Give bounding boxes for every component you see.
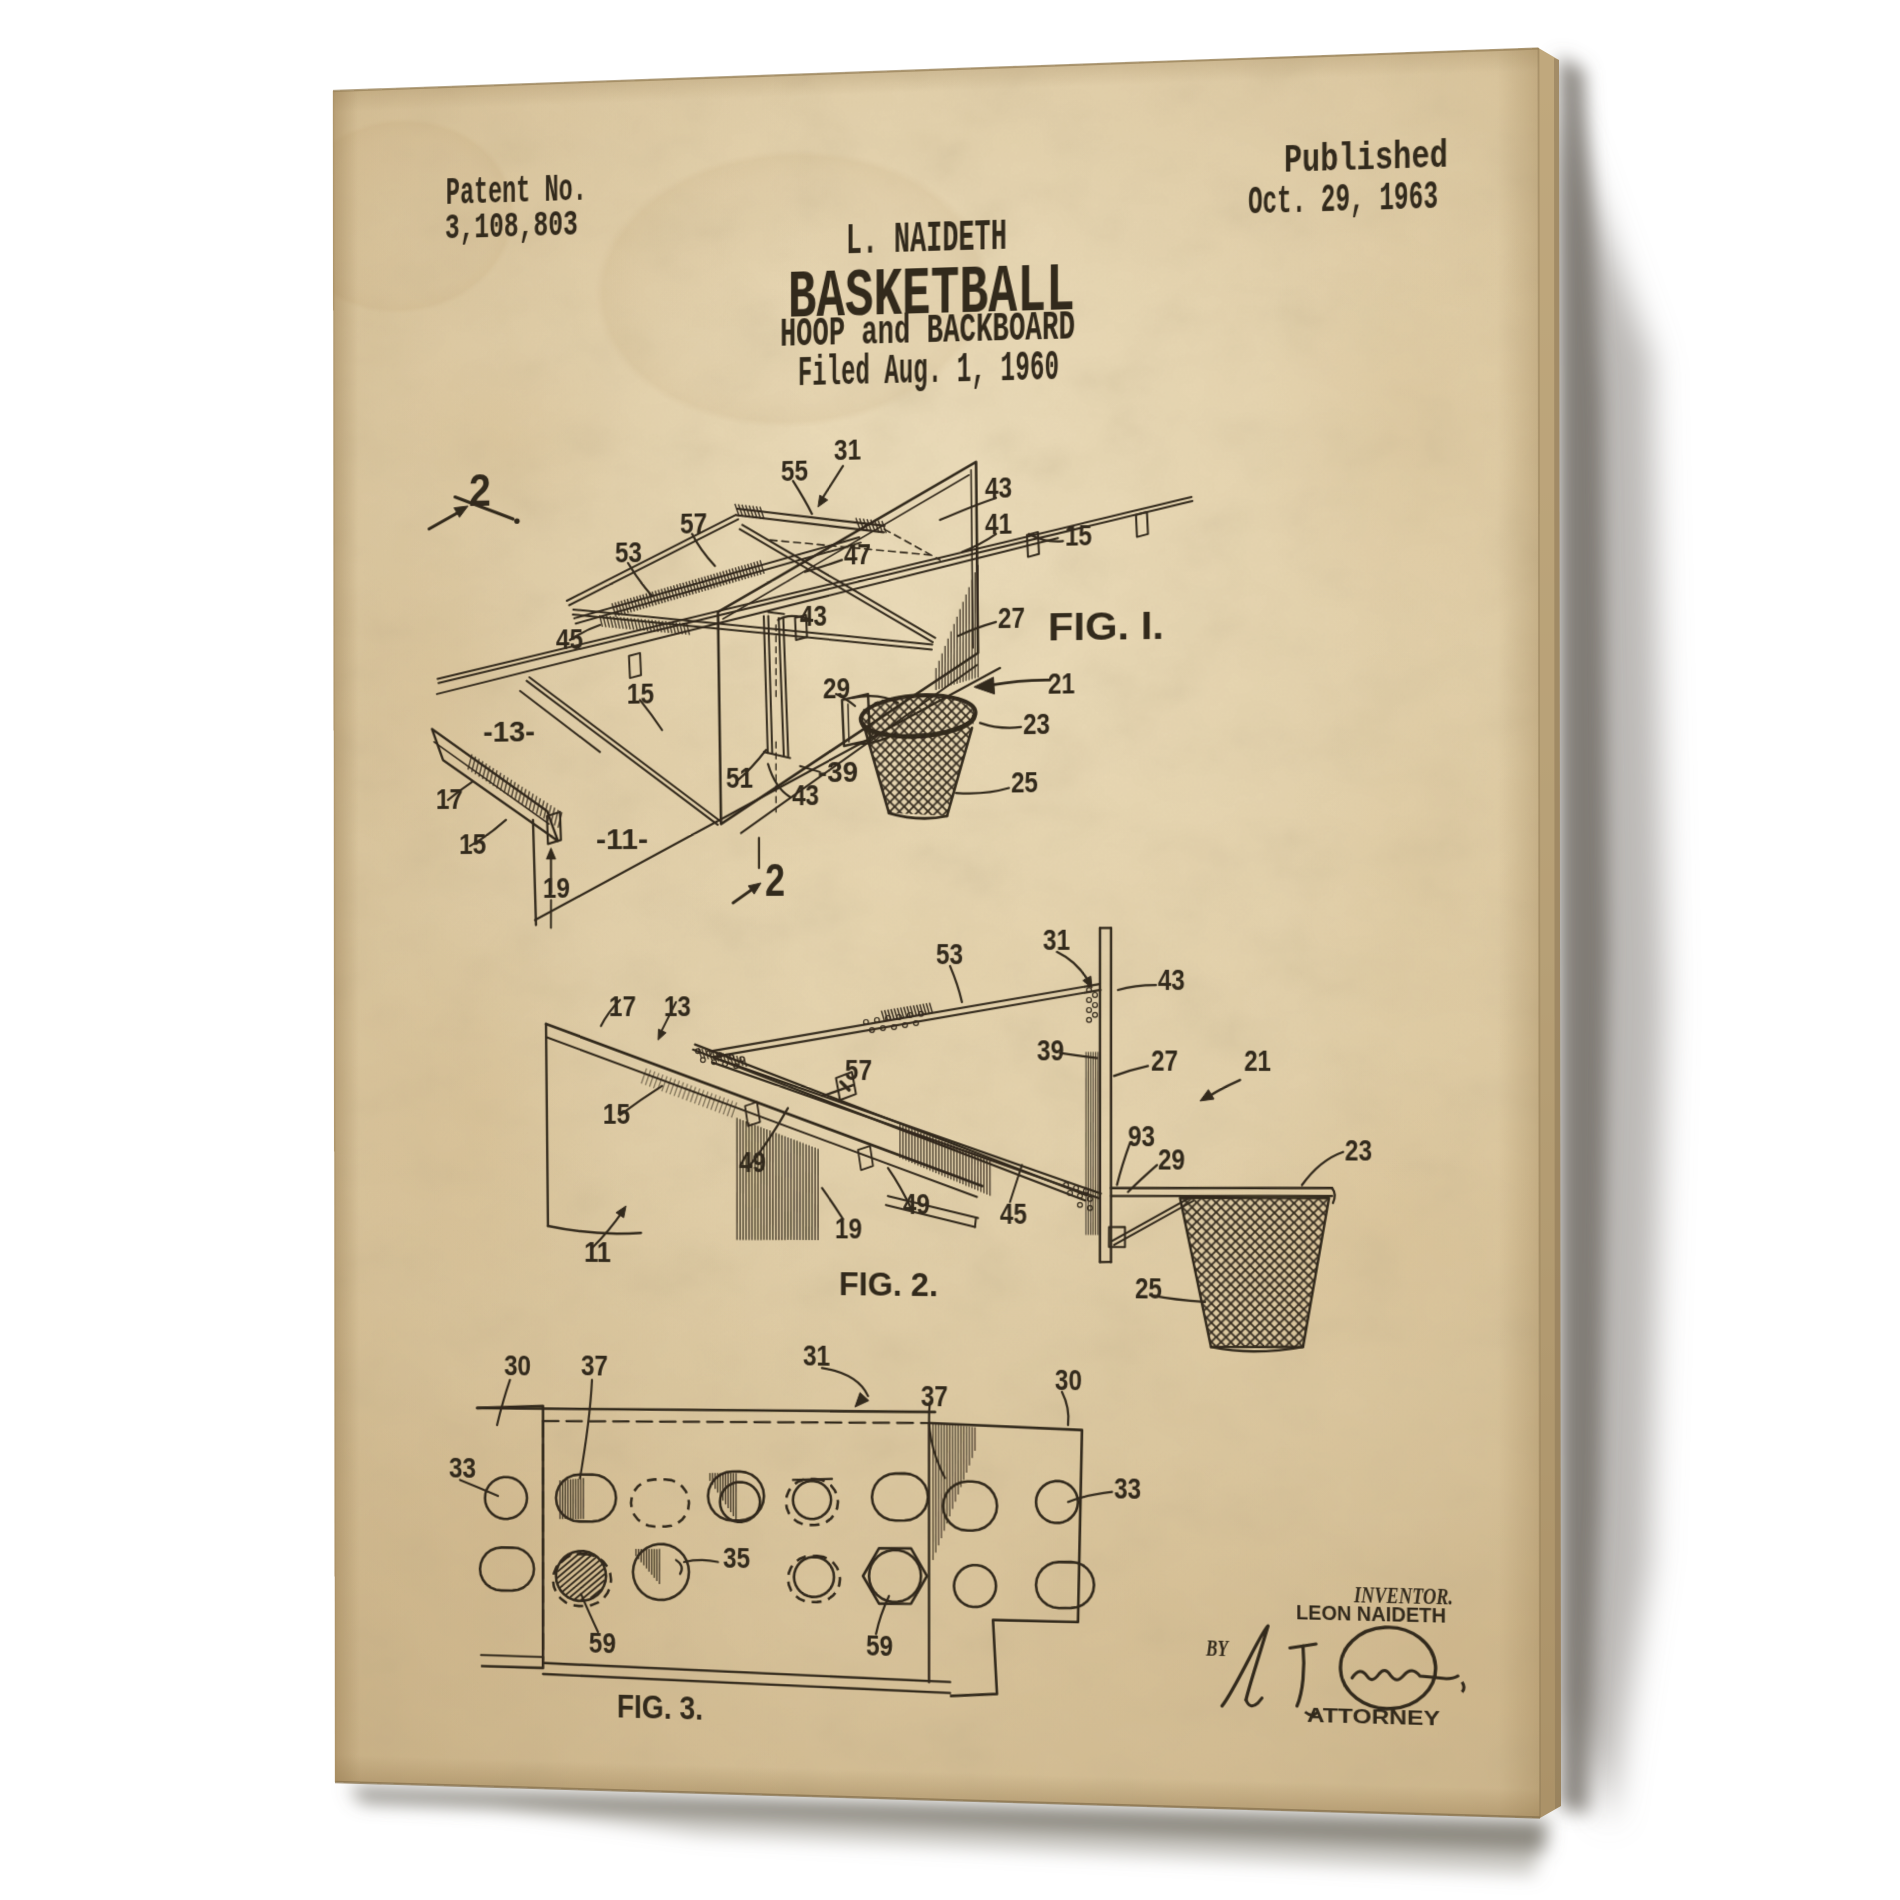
svg-text:93: 93 xyxy=(1128,1120,1155,1153)
svg-text:45: 45 xyxy=(1000,1198,1027,1231)
svg-text:Filed Aug. 1, 1960: Filed Aug. 1, 1960 xyxy=(798,344,1059,398)
svg-text:31: 31 xyxy=(1043,924,1070,956)
svg-text:-13-: -13- xyxy=(483,716,535,749)
svg-text:3,108,803: 3,108,803 xyxy=(445,203,578,249)
svg-text:11: 11 xyxy=(584,1236,611,1269)
svg-text:29: 29 xyxy=(1158,1144,1185,1177)
svg-text:BY: BY xyxy=(1205,1636,1229,1662)
svg-text:49: 49 xyxy=(903,1187,930,1220)
svg-text:45: 45 xyxy=(556,623,583,656)
svg-text:30: 30 xyxy=(504,1349,531,1382)
svg-text:ATTORNEY: ATTORNEY xyxy=(1307,1705,1440,1731)
svg-text:2: 2 xyxy=(765,856,785,907)
svg-text:33: 33 xyxy=(1114,1472,1141,1505)
svg-text:23: 23 xyxy=(1023,708,1050,741)
svg-text:21: 21 xyxy=(1048,668,1075,701)
svg-text:43: 43 xyxy=(985,471,1012,504)
svg-text:43: 43 xyxy=(792,779,819,812)
svg-text:FIG. 3.: FIG. 3. xyxy=(617,1687,703,1726)
svg-text:47: 47 xyxy=(844,538,871,572)
svg-text:21: 21 xyxy=(1244,1045,1271,1078)
svg-text:15: 15 xyxy=(1065,519,1092,552)
svg-text:33: 33 xyxy=(449,1451,476,1484)
svg-text:51: 51 xyxy=(726,762,753,795)
svg-text:15: 15 xyxy=(459,828,486,861)
svg-text:57: 57 xyxy=(845,1053,872,1086)
svg-text:19: 19 xyxy=(835,1211,862,1244)
svg-text:31: 31 xyxy=(834,432,861,466)
svg-text:29: 29 xyxy=(823,671,850,705)
svg-text:37: 37 xyxy=(581,1349,608,1382)
svg-text:59: 59 xyxy=(589,1627,616,1661)
svg-text:55: 55 xyxy=(781,455,808,489)
svg-text:FIG. I.: FIG. I. xyxy=(1048,603,1164,649)
svg-text:17: 17 xyxy=(609,990,636,1023)
svg-text:15: 15 xyxy=(627,678,654,711)
svg-text:27: 27 xyxy=(998,602,1025,635)
svg-text:43: 43 xyxy=(1158,964,1185,997)
svg-text:LEON NAIDETH: LEON NAIDETH xyxy=(1296,1601,1446,1627)
svg-text:27: 27 xyxy=(1151,1045,1178,1078)
svg-text:43: 43 xyxy=(800,600,827,634)
svg-text:-39: -39 xyxy=(818,755,858,789)
svg-text:23: 23 xyxy=(1345,1134,1372,1167)
svg-text:41: 41 xyxy=(985,507,1012,540)
svg-text:35: 35 xyxy=(723,1542,750,1576)
svg-text:30: 30 xyxy=(1055,1364,1082,1397)
svg-text:49: 49 xyxy=(739,1146,766,1179)
svg-text:53: 53 xyxy=(936,938,963,970)
svg-text:FIG. 2.: FIG. 2. xyxy=(839,1265,938,1303)
svg-text:39: 39 xyxy=(1037,1034,1064,1066)
svg-text:25: 25 xyxy=(1135,1272,1162,1305)
svg-text:57: 57 xyxy=(680,508,707,542)
svg-text:13: 13 xyxy=(664,990,691,1023)
svg-text:59: 59 xyxy=(866,1628,893,1662)
svg-text:17: 17 xyxy=(436,783,463,816)
svg-text:15: 15 xyxy=(603,1098,630,1131)
svg-text:-11-: -11- xyxy=(596,823,648,856)
svg-text:25: 25 xyxy=(1011,767,1038,800)
svg-text:37: 37 xyxy=(921,1379,948,1413)
svg-text:19: 19 xyxy=(543,872,570,905)
svg-text:Oct. 29, 1963: Oct. 29, 1963 xyxy=(1248,175,1438,225)
svg-text:53: 53 xyxy=(615,537,642,570)
svg-text:31: 31 xyxy=(803,1339,830,1372)
